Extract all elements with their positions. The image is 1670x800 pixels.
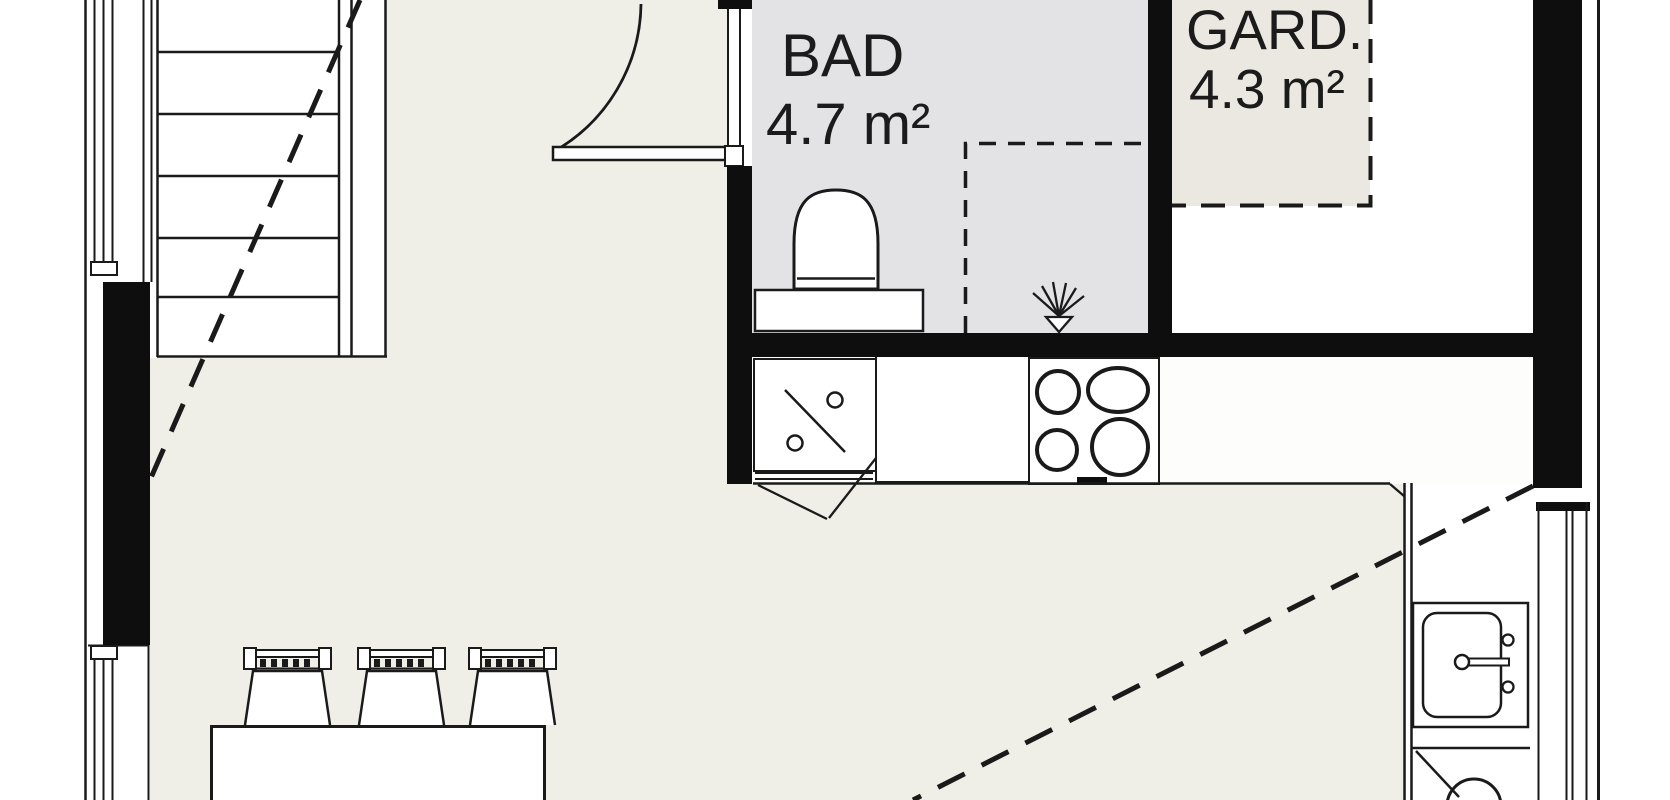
- floor-plan: BAD 4.7 m² GARD. 4.3 m²: [0, 0, 1670, 800]
- door-leaf: [553, 147, 727, 160]
- chair: [358, 648, 445, 725]
- kitchen-floor-edge-notch: [1390, 484, 1404, 496]
- wall-left: [103, 282, 150, 645]
- room-area-gard: 4.3 m²: [1189, 62, 1345, 117]
- shower-drain-icon: [1033, 282, 1084, 332]
- appliance-circle-icon: [1411, 748, 1530, 800]
- wall-bath-left: [727, 166, 752, 484]
- stair-break-dashed-line: [150, 0, 360, 480]
- chair: [244, 648, 331, 725]
- right-counter: [1405, 483, 1531, 800]
- chair: [469, 648, 556, 725]
- toilet-icon: [755, 190, 923, 331]
- kitchen-sink-icon: [1413, 603, 1528, 727]
- door-swing-arc: [553, 4, 641, 152]
- kitchen-entry-door-lines: [758, 458, 876, 519]
- wall-bath-gard-divider: [1148, 0, 1172, 357]
- stove-burners-icon: [1037, 368, 1148, 475]
- wall-bath-top-stub: [718, 0, 752, 9]
- shower-corner: [966, 144, 1149, 334]
- dishwasher-icon: [785, 390, 845, 452]
- door-hinge: [725, 146, 743, 166]
- room-label-gard: GARD.: [1186, 2, 1363, 58]
- staircase: [150, 0, 387, 480]
- room-label-bad: BAD: [781, 26, 904, 86]
- wall-right: [1533, 0, 1582, 488]
- room-area-bad: 4.7 m²: [766, 96, 930, 154]
- bathroom-door: [553, 4, 743, 166]
